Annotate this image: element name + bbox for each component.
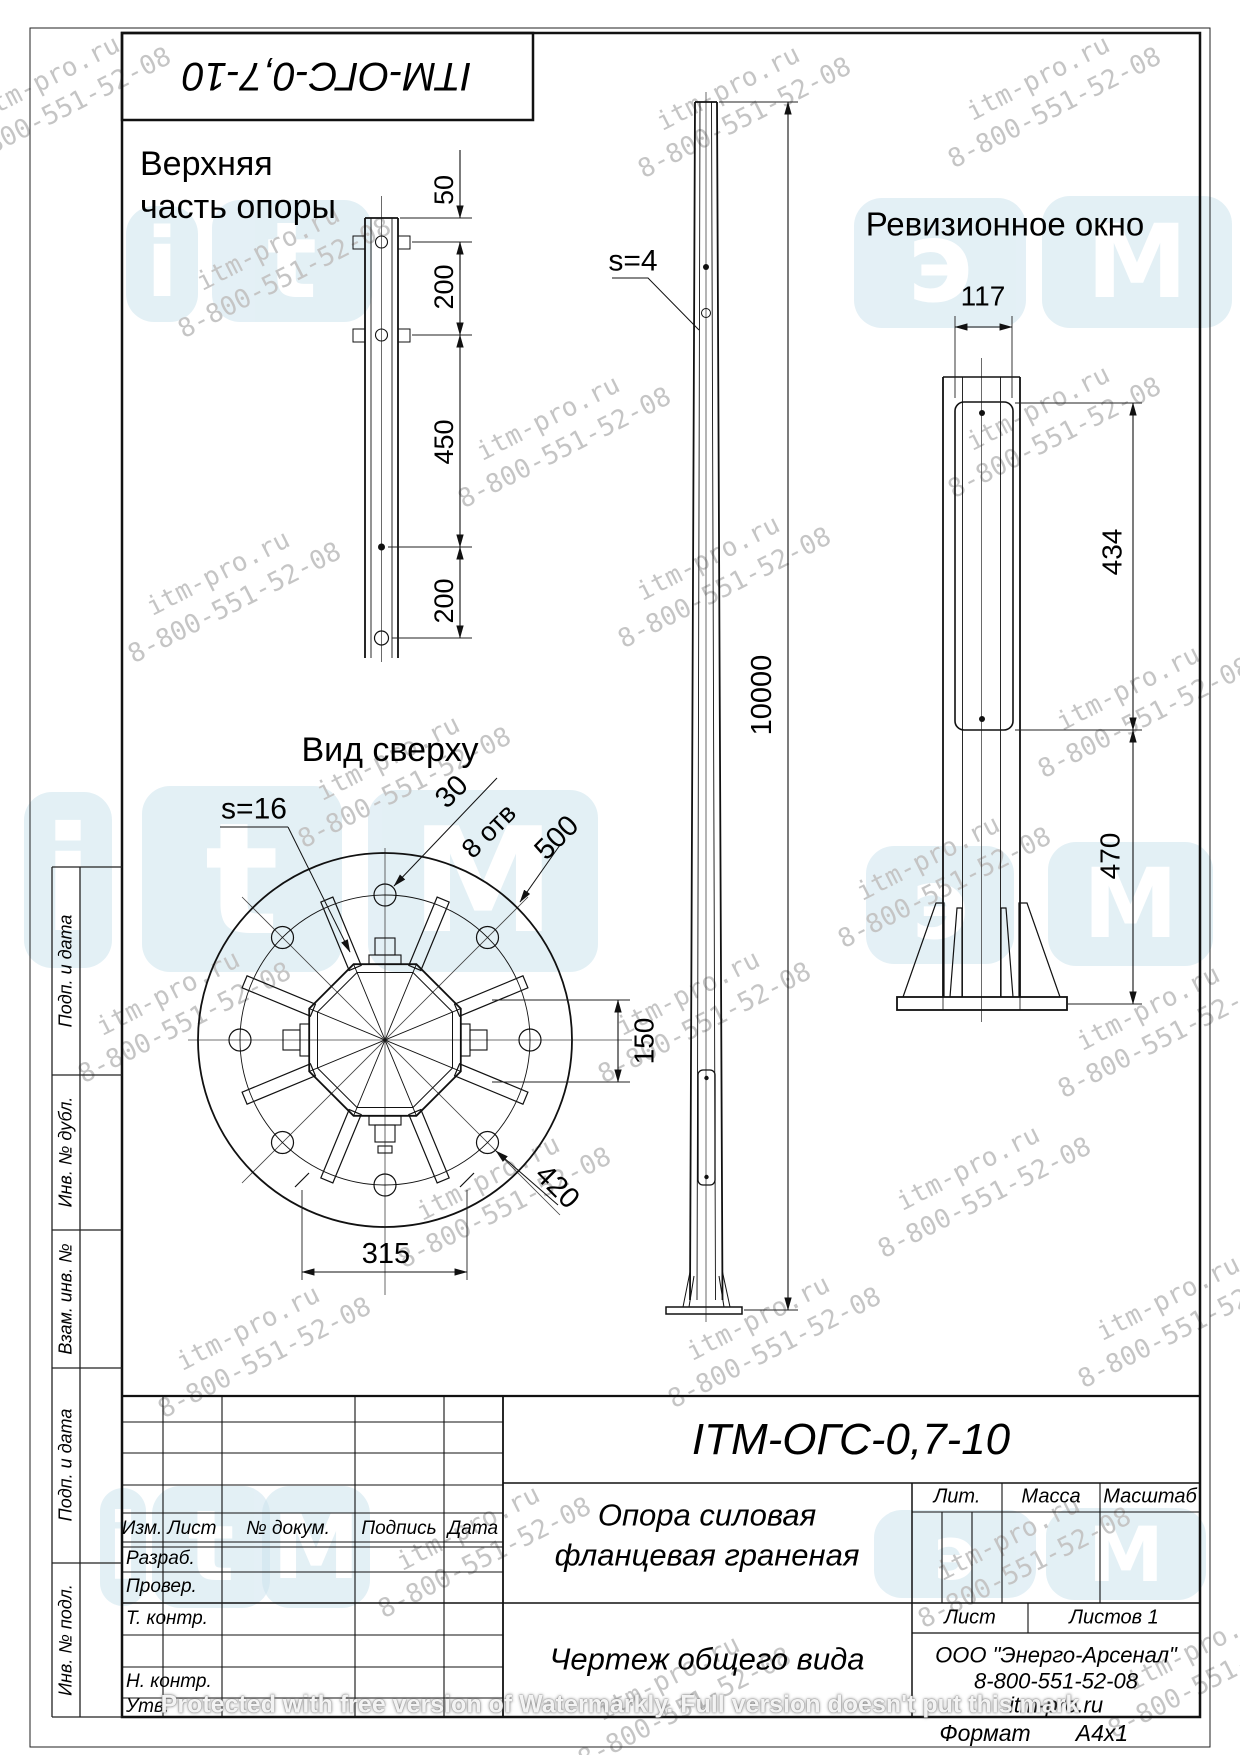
margin-inv-podl: Инв. № подл. — [57, 1584, 76, 1696]
col-doc: № докум. — [246, 1519, 330, 1539]
format-value: A4x1 — [1076, 1721, 1128, 1745]
dim-500: 500 — [529, 810, 585, 866]
wall-thickness-s4: s=4 — [608, 245, 657, 277]
row-nkontr: Н. контр. — [126, 1672, 212, 1692]
upper-view-title-line1: Верхняя — [140, 147, 273, 183]
titleblock-mass-header: Масса — [1021, 1487, 1080, 1508]
titleblock-sheets-count: Листов 1 — [1069, 1608, 1159, 1629]
wall-thickness-s16: s=16 — [221, 793, 287, 825]
watermarkly-protection-note: Protected with free version of Watermark… — [161, 1691, 1080, 1720]
drawing-sheet: itэMitMэMitMэM itm-pro.ru8-800-551-52-08… — [0, 0, 1240, 1755]
titleblock-doc-type: Чертеж общего вида — [550, 1644, 865, 1677]
holes-count-note: 8 отв — [456, 798, 521, 863]
row-prover: Провер. — [126, 1577, 197, 1597]
dim-434: 434 — [1097, 529, 1126, 576]
dim-450: 450 — [430, 419, 458, 464]
row-razrab: Разраб. — [126, 1549, 195, 1569]
label-layer: ITM-ОГС-0,7-10 Верхняя часть опоры Ревиз… — [0, 0, 1240, 1755]
row-tkontr: Т. контр. — [126, 1609, 208, 1629]
dim-30: 30 — [430, 770, 474, 814]
margin-podp-data-2: Подп. и дата — [57, 1409, 76, 1522]
margin-podp-data-1: Подп. и дата — [57, 915, 76, 1028]
col-sign: Подпись — [361, 1519, 436, 1539]
top-view-title: Вид сверху — [301, 733, 478, 769]
col-list: Лист — [168, 1519, 217, 1539]
dim-200-lower: 200 — [430, 578, 458, 623]
top-stamp-designation: ITM-ОГС-0,7-10 — [182, 55, 471, 97]
company-phone: 8-800-551-52-08 — [974, 1669, 1138, 1692]
titleblock-lit-header: Лит. — [934, 1487, 981, 1508]
dim-200-upper: 200 — [430, 264, 458, 309]
margin-vzam-inv: Взам. инв. № — [57, 1243, 76, 1354]
upper-view-title-line2: часть опоры — [140, 190, 336, 226]
dim-315: 315 — [362, 1239, 410, 1269]
dim-470: 470 — [1095, 833, 1124, 880]
dim-117: 117 — [961, 281, 1006, 310]
format-label: Формат — [939, 1721, 1030, 1745]
dim-50: 50 — [430, 175, 458, 205]
titleblock-scale-header: Масштаб — [1103, 1487, 1196, 1508]
dim-150: 150 — [629, 1018, 658, 1065]
margin-inv-dubl: Инв. № дубл. — [57, 1097, 76, 1208]
revision-view-title: Ревизионное окно — [866, 208, 1145, 243]
dim-420: 420 — [529, 1159, 585, 1215]
col-date: Дата — [448, 1519, 498, 1539]
company-name: ООО "Энерго-Арсенал" — [935, 1643, 1177, 1666]
col-izm: Изм. — [122, 1519, 163, 1539]
dim-10000: 10000 — [747, 655, 777, 736]
titleblock-sheet-header: Лист — [944, 1608, 996, 1629]
titleblock-name-line1: Опора силовая — [598, 1500, 816, 1533]
titleblock-name-line2: фланцевая граненая — [555, 1540, 860, 1573]
titleblock-designation: ITM-ОГС-0,7-10 — [692, 1417, 1010, 1463]
